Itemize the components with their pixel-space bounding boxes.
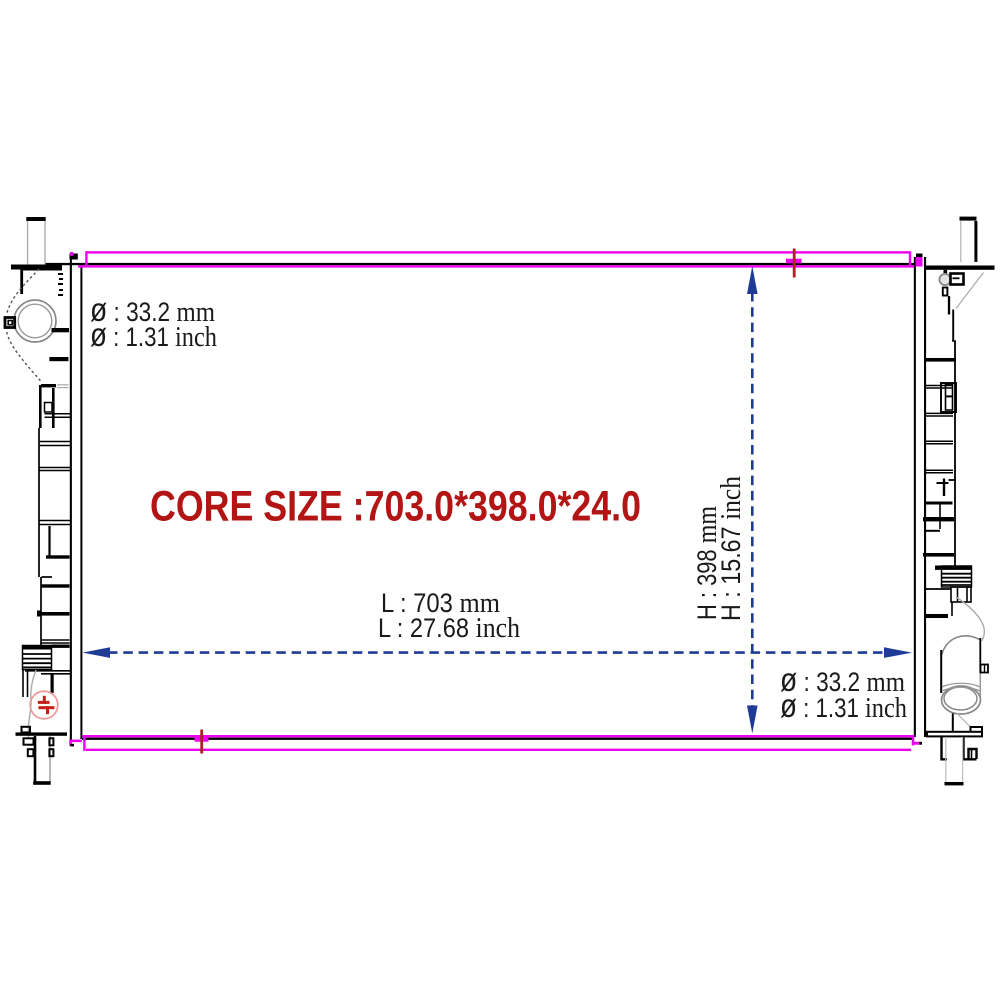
- svg-text:L : 27.68 inch: L : 27.68 inch: [378, 612, 520, 644]
- svg-text:H : 15.67 inch: H : 15.67 inch: [715, 476, 747, 621]
- svg-text:ø : 1.31 inch: ø : 1.31 inch: [780, 687, 907, 724]
- svg-text:ø : 1.31 inch: ø : 1.31 inch: [90, 316, 217, 353]
- svg-text:CORE SIZE :703.0*398.0*24.0: CORE SIZE :703.0*398.0*24.0: [150, 483, 641, 531]
